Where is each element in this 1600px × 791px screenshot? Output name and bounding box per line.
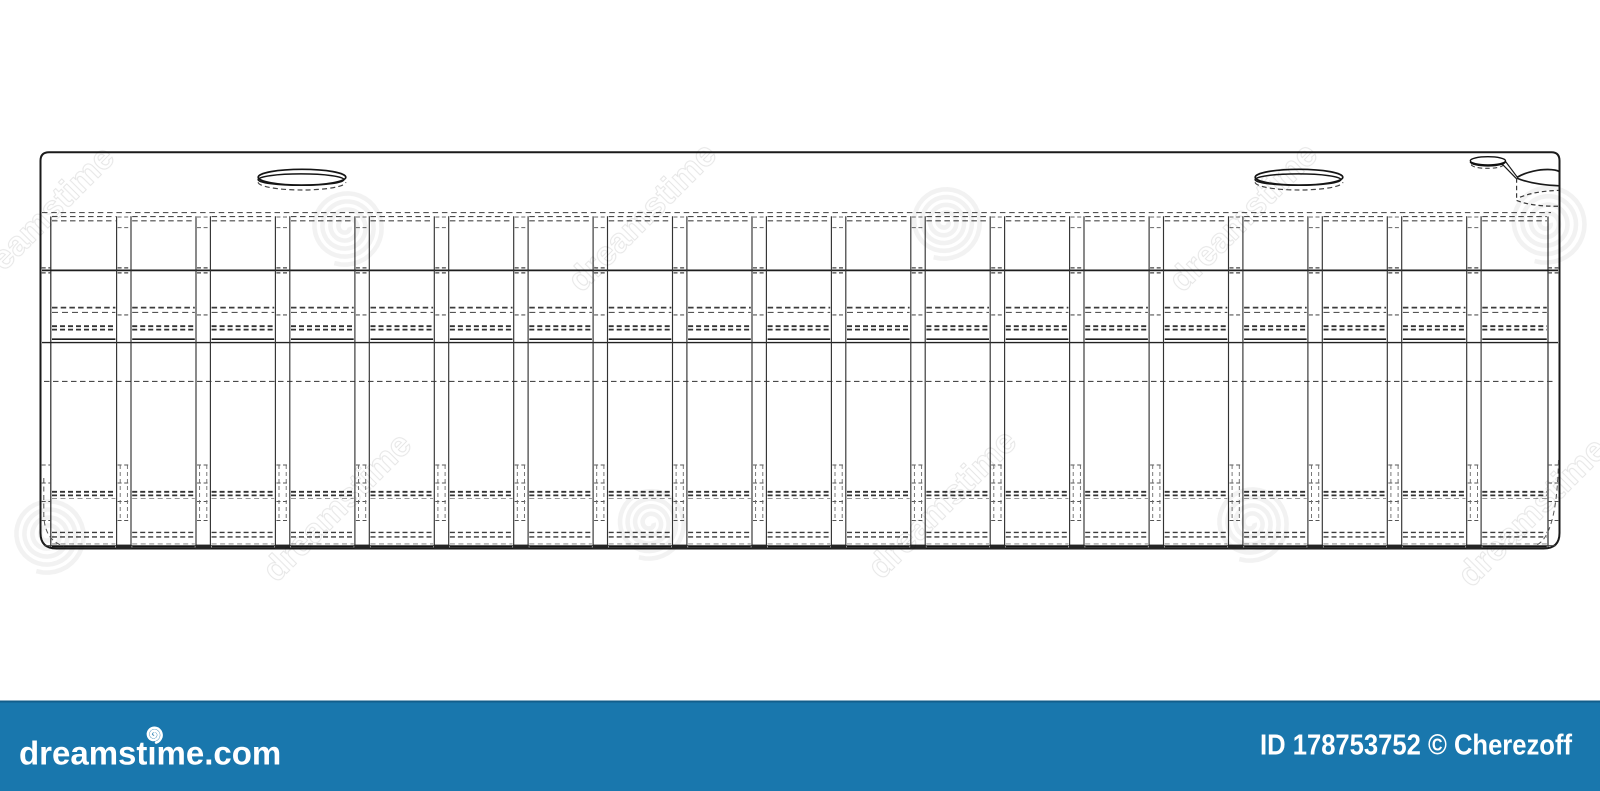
svg-text:ID 178753752 © Cherezoff: ID 178753752 © Cherezoff (1260, 729, 1572, 761)
